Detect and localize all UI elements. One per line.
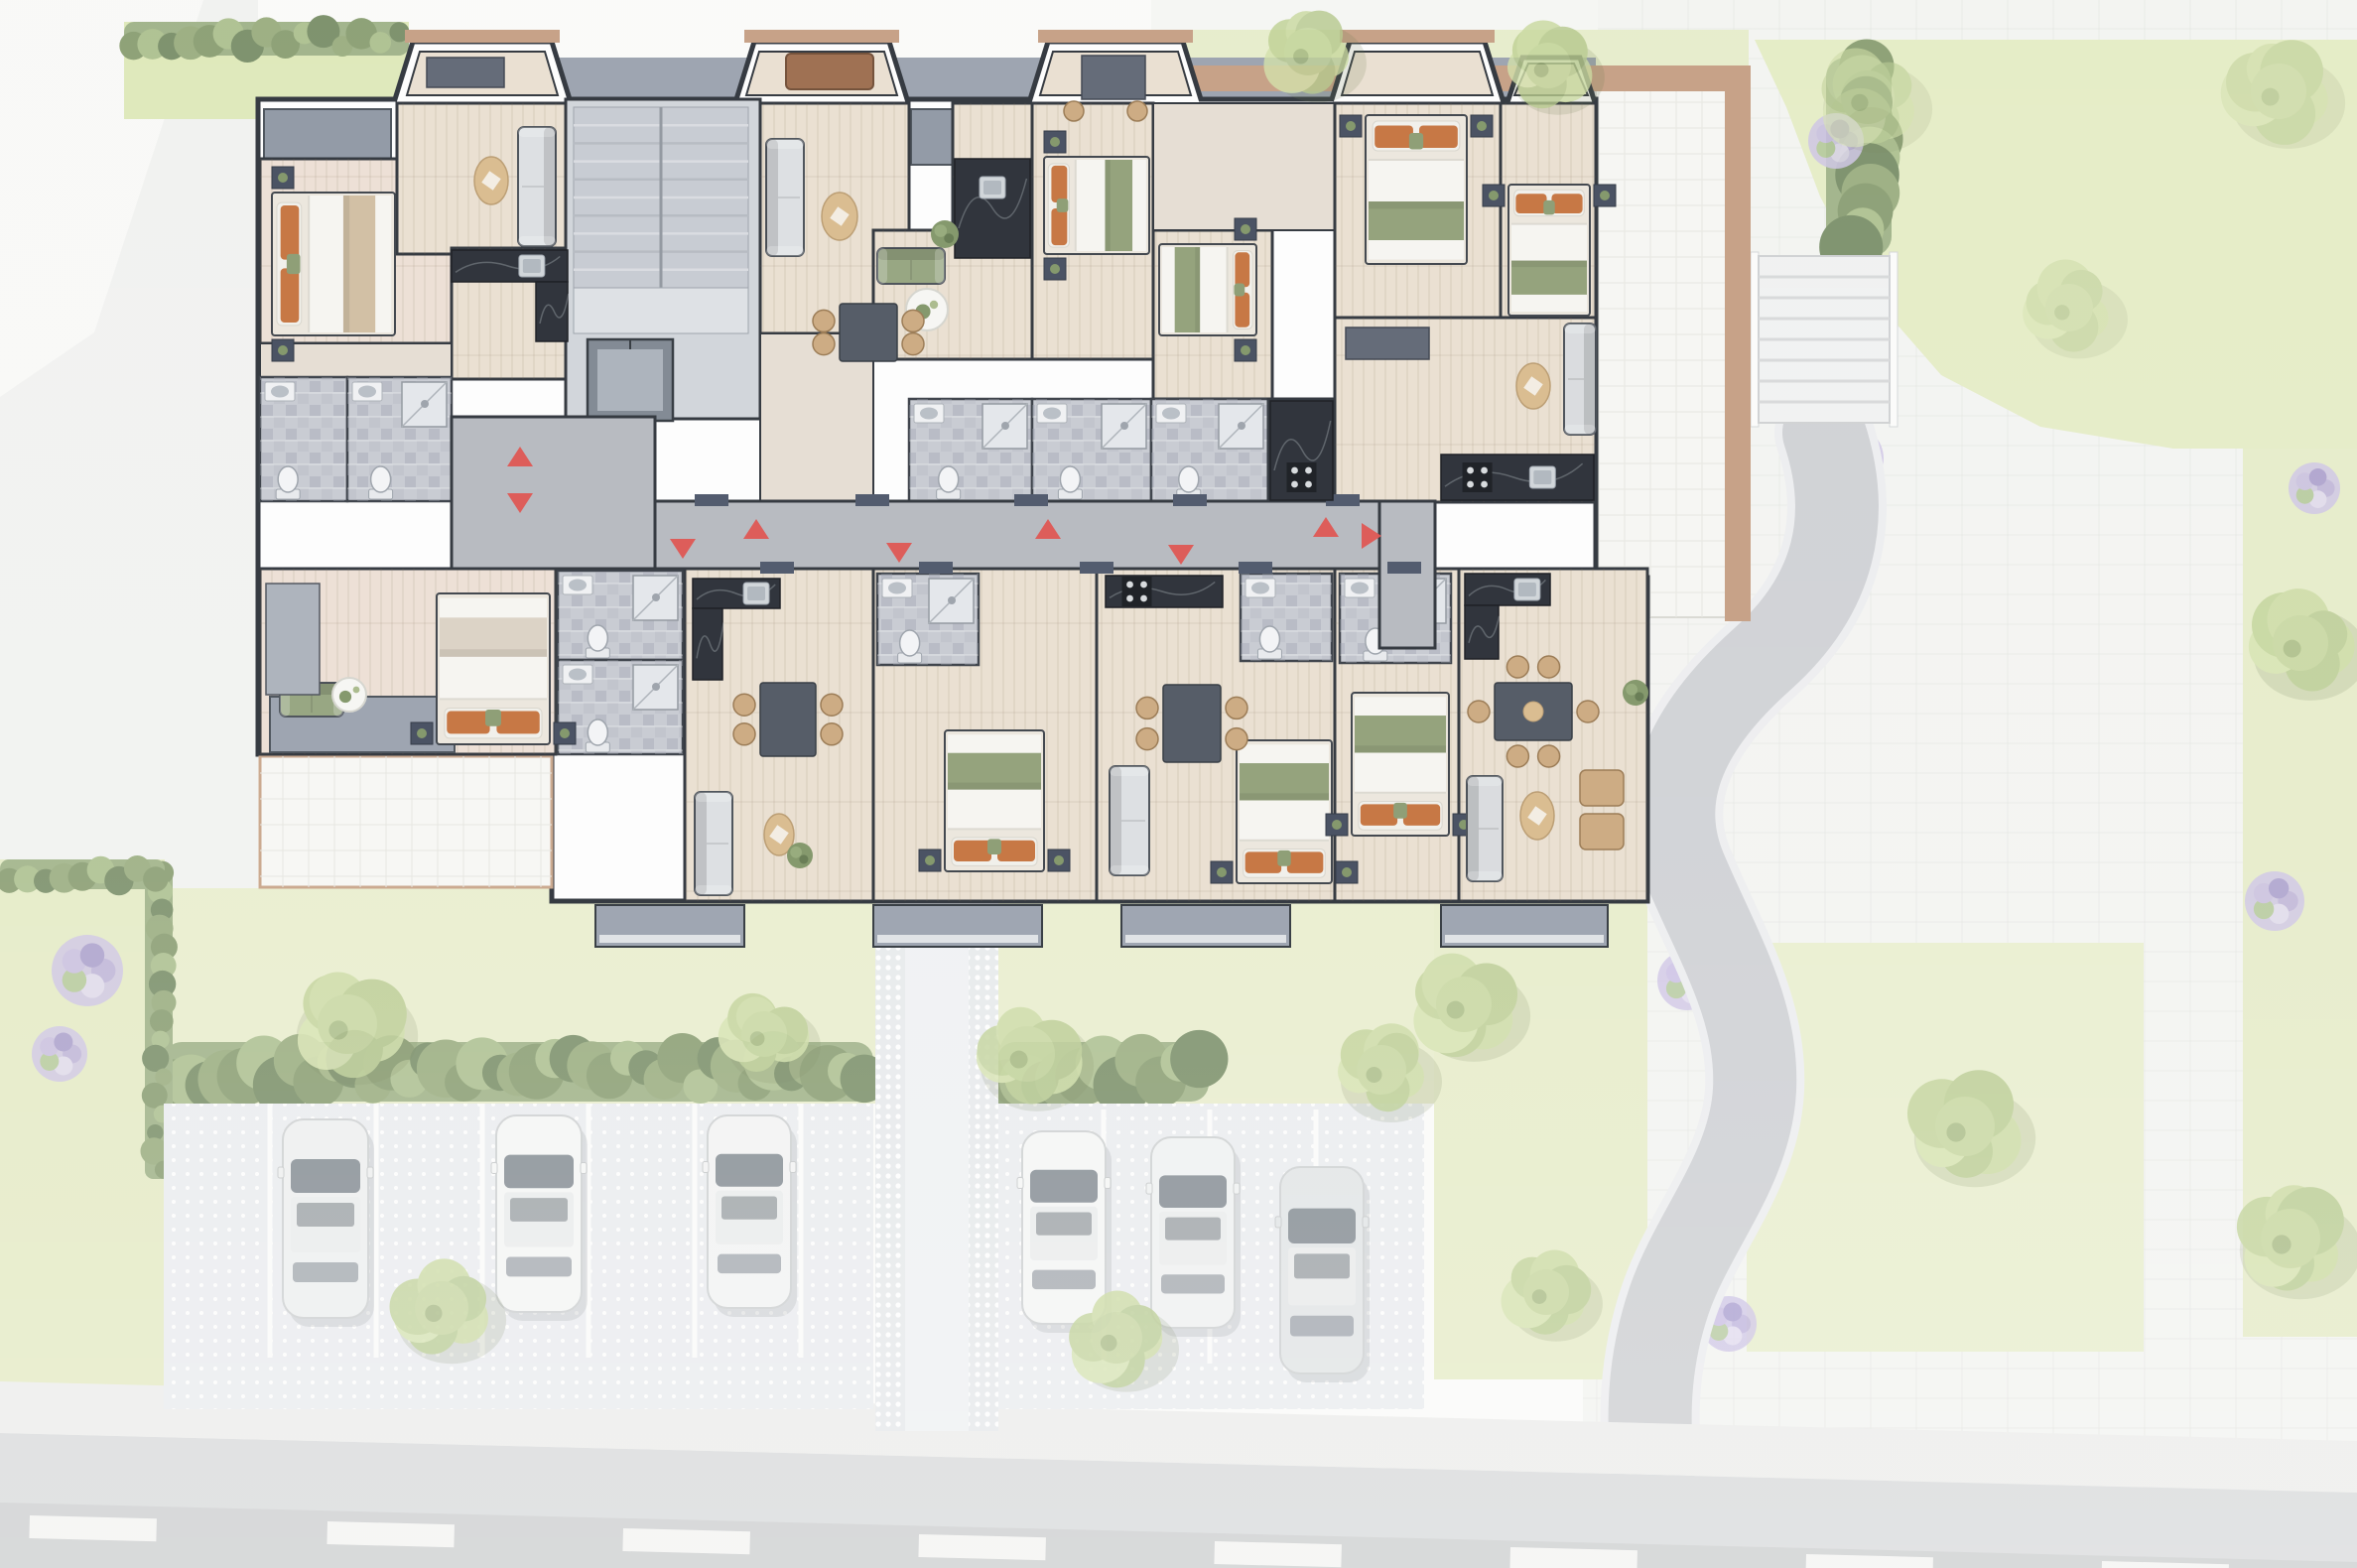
floor-plan-rendering xyxy=(0,0,2357,1568)
layer-wash2 xyxy=(0,0,2357,1568)
site-plan-stage xyxy=(0,0,2357,1568)
global-wash xyxy=(0,0,2357,1568)
